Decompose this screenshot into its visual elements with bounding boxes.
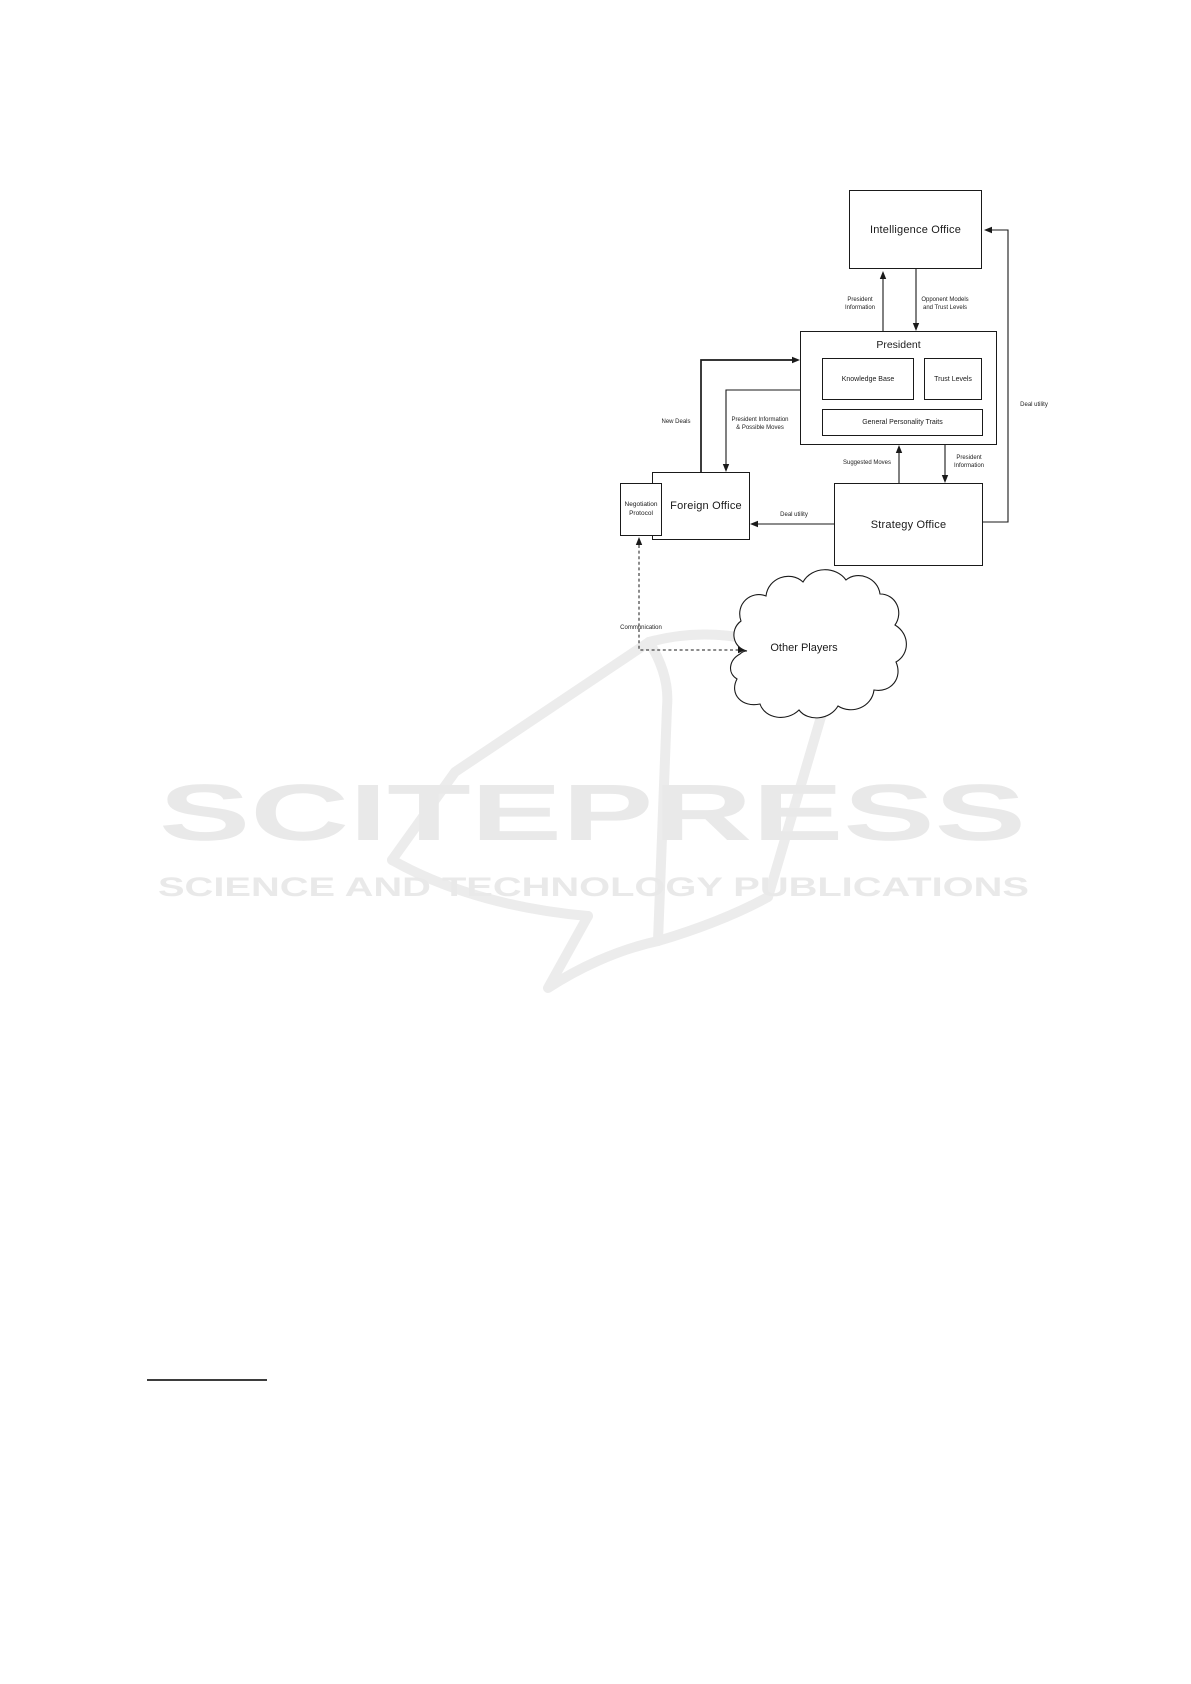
node-intelligence-office: Intelligence Office [849,190,982,269]
edge-president-information-to-intelligence [880,271,886,331]
president-label: President [876,332,920,351]
knowledge-base-label: Knowledge Base [842,376,895,383]
node-negotiation-protocol: Negotiation Protocol [620,483,662,536]
label-president-information-to-intelligence: President Information [845,297,875,313]
node-strategy-office: Strategy Office [834,483,983,566]
label-new-deals: New Deals [661,419,690,427]
edge-opponent-models-and-trust-levels [913,269,919,331]
foreign-office-label: Foreign Office [660,500,742,512]
label-communication: Communication [620,625,662,633]
footnote-rule [147,1379,267,1381]
edge-president-information-to-strategy [942,445,948,483]
label-deal-utility-to-intelligence: Deal utility [1020,402,1048,410]
general-personality-traits-label: General Personality Traits [862,419,943,426]
label-president-information-to-strategy: President Information [954,455,984,471]
diagram-canvas: SCITEPRESS SCIENCE AND TECHNOLOGY PUBLIC… [0,0,1191,1684]
label-suggested-moves: Suggested Moves [843,460,891,468]
edge-suggested-moves [896,445,902,483]
node-trust-levels: Trust Levels [924,358,982,400]
label-opponent-models-and-trust-levels: Opponent Models and Trust Levels [921,297,968,313]
node-knowledge-base: Knowledge Base [822,358,914,400]
watermark-tagline: SCIENCE AND TECHNOLOGY PUBLICATIONS [158,872,1029,902]
strategy-office-label: Strategy Office [871,519,947,531]
trust-levels-label: Trust Levels [934,376,972,383]
intelligence-office-label: Intelligence Office [870,224,961,236]
edge-deal-utility-to-foreign-office [750,521,834,527]
negotiation-protocol-label: Negotiation Protocol [625,501,658,518]
paper-page: SCITEPRESS SCIENCE AND TECHNOLOGY PUBLIC… [0,0,1191,1684]
label-deal-utility-to-foreign-office: Deal utility [780,512,808,520]
other-players-label: Other Players [770,642,837,654]
node-foreign-office: Foreign Office [652,472,750,540]
edge-new-deals [701,357,800,472]
label-president-information-possible-moves: President Information & Possible Moves [731,417,788,433]
watermark-wordmark: SCITEPRESS [159,768,1026,857]
node-general-personality-traits: General Personality Traits [822,409,983,436]
